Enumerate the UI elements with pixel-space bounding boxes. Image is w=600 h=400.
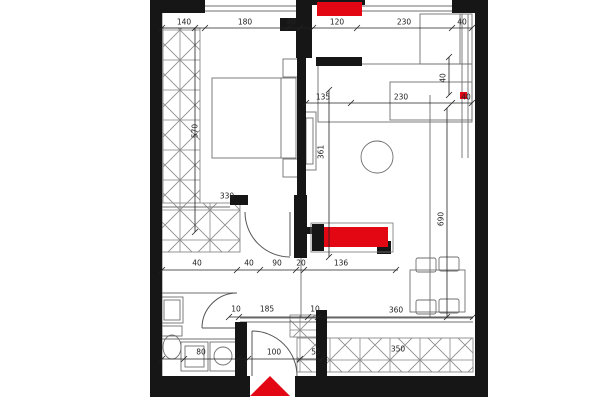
toilet-tank — [162, 326, 182, 336]
wall-bottom-right — [295, 376, 488, 397]
wall-left — [150, 0, 162, 397]
wall-bottom-left — [150, 376, 250, 397]
nightstand — [283, 159, 299, 177]
window-right — [462, 14, 468, 158]
window-top-right — [362, 6, 452, 11]
wall-bathroom — [235, 322, 247, 376]
wall-shaft-bracket — [312, 224, 324, 251]
left-loggia-hatch — [163, 28, 200, 232]
wall-divider-upper — [297, 57, 306, 210]
wall-entry-stub — [316, 310, 327, 376]
wall-top-right — [452, 0, 488, 13]
window-top-left — [205, 6, 296, 11]
entry-door — [252, 331, 297, 376]
walls — [150, 0, 488, 397]
riser-shaft-top — [317, 2, 362, 16]
wall-top-left — [150, 0, 205, 13]
round-table — [361, 141, 393, 173]
wall-divider-lower — [294, 195, 307, 258]
chair — [439, 257, 459, 271]
wall-right — [475, 0, 488, 397]
riser-shaft-middle — [324, 227, 388, 247]
bedroom-door — [245, 212, 290, 257]
floor-plan-canvas: 1401804012023040135230403304040902013610… — [0, 0, 600, 400]
dining-table — [410, 270, 465, 312]
nightstand — [283, 59, 299, 77]
wall-closet-bar — [316, 57, 362, 66]
wall-top-mid-stub — [296, 0, 312, 58]
bathroom-door — [202, 293, 237, 328]
floor-plan-drawing — [0, 0, 600, 400]
bathroom-fixtures — [161, 297, 237, 371]
red-dot-right — [460, 92, 467, 99]
dining-set — [410, 257, 465, 314]
wall-door-jamb — [230, 195, 248, 205]
chair — [439, 299, 459, 313]
entrance-arrow — [250, 376, 290, 396]
bed — [212, 59, 299, 177]
wall-pier — [280, 18, 298, 31]
corridor-wardrobe-hatch — [162, 203, 240, 252]
